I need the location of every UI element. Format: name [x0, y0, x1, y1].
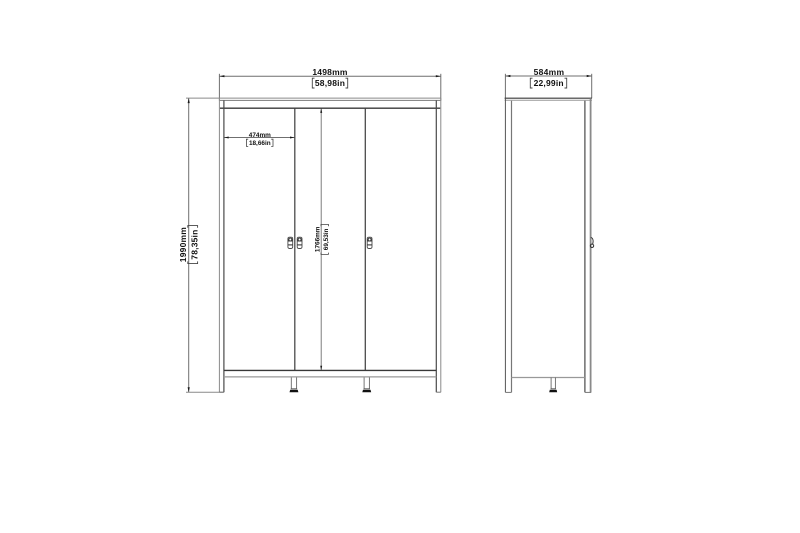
svg-text:1990mm: 1990mm [178, 227, 188, 262]
svg-text:1766mm: 1766mm [315, 226, 322, 252]
svg-text:69,53in: 69,53in [323, 228, 330, 250]
svg-text:78,35in: 78,35in [189, 229, 199, 259]
svg-text:474mm: 474mm [249, 132, 271, 139]
svg-text:18,66in: 18,66in [249, 140, 271, 147]
svg-text:22,99in: 22,99in [534, 78, 564, 88]
svg-text:1498mm: 1498mm [312, 67, 347, 77]
svg-text:584mm: 584mm [534, 67, 565, 77]
svg-text:58,98in: 58,98in [315, 78, 345, 88]
